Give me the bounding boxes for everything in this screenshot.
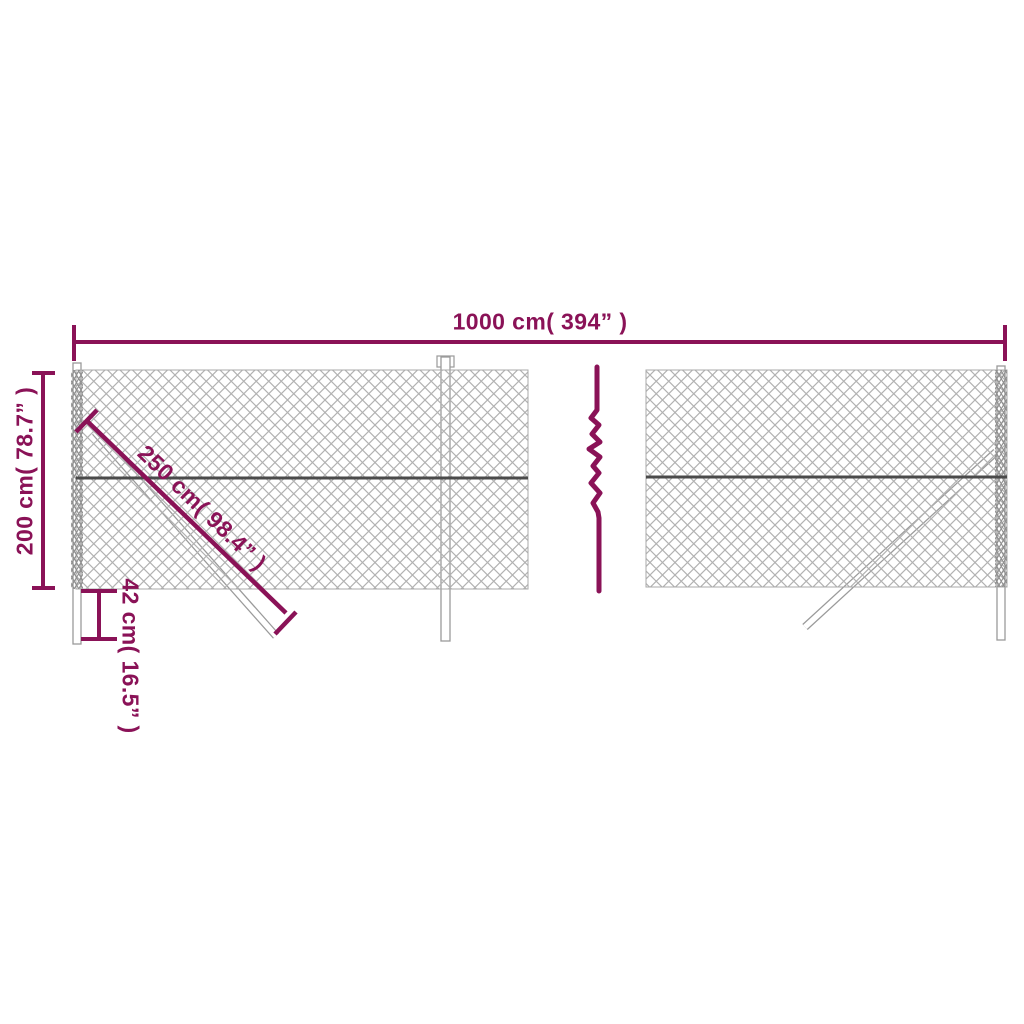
height-dimension-label: 200 cm( 78.7” ) [12, 387, 39, 555]
diagram-drawing [0, 0, 1024, 1024]
width-dimension-label: 1000 cm( 394” ) [453, 309, 628, 336]
fence-dimension-diagram: 1000 cm( 394” ) 200 cm( 78.7” ) 250 cm( … [0, 0, 1024, 1024]
post-depth-dimension-label: 42 cm( 16.5” ) [117, 578, 144, 733]
post-depth-dimension-line [81, 591, 117, 639]
zigzag-break-icon [589, 367, 600, 591]
